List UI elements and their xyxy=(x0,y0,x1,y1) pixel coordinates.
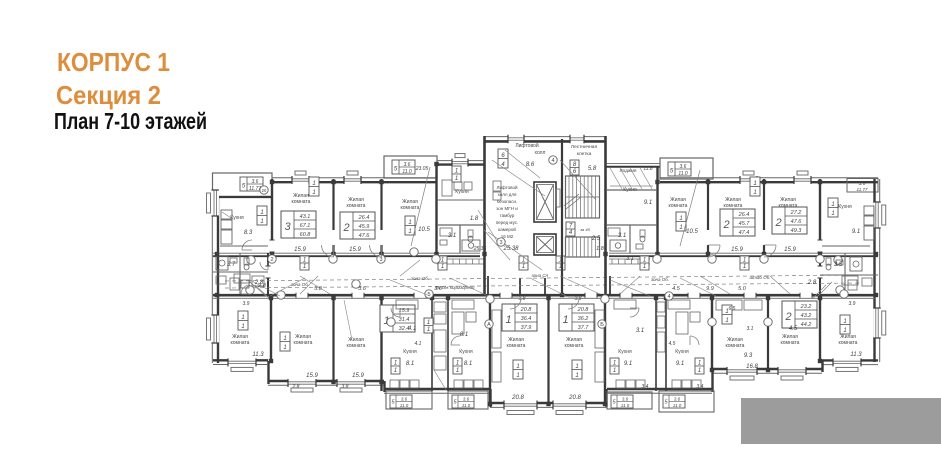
svg-text:20.8: 20.8 xyxy=(520,307,533,313)
svg-text:23.2: 23.2 xyxy=(800,304,812,310)
svg-text:4: 4 xyxy=(667,294,670,300)
svg-text:1: 1 xyxy=(743,258,746,264)
svg-text:1: 1 xyxy=(753,190,756,196)
svg-text:43.1: 43.1 xyxy=(300,214,311,220)
svg-text:1: 1 xyxy=(522,264,525,270)
svg-text:3.6: 3.6 xyxy=(434,286,443,292)
svg-text:1: 1 xyxy=(643,264,646,270)
svg-text:60.8: 60.8 xyxy=(300,232,312,238)
svg-text:1: 1 xyxy=(283,345,286,351)
svg-text:1: 1 xyxy=(516,364,519,370)
svg-text:37.9: 37.9 xyxy=(521,325,532,331)
svg-text:11.0: 11.0 xyxy=(678,171,688,177)
svg-text:27.2: 27.2 xyxy=(790,210,802,216)
svg-text:1: 1 xyxy=(312,181,315,187)
svg-text:3.6: 3.6 xyxy=(674,397,681,402)
svg-text:комната: комната xyxy=(839,340,858,346)
svg-text:9.1: 9.1 xyxy=(624,361,632,367)
svg-text:зона СА: зона СА xyxy=(531,273,549,278)
svg-text:2: 2 xyxy=(342,222,349,234)
svg-text:3.4: 3.4 xyxy=(642,384,649,390)
svg-text:3.8: 3.8 xyxy=(342,384,349,390)
svg-text:8.1: 8.1 xyxy=(406,361,414,367)
svg-text:Кухня: Кухня xyxy=(838,204,852,210)
svg-text:1: 1 xyxy=(843,328,846,334)
svg-text:15.9: 15.9 xyxy=(731,247,743,253)
svg-text:1: 1 xyxy=(698,368,701,374)
svg-text:зон МГН и: зон МГН и xyxy=(496,206,518,211)
svg-text:3.6: 3.6 xyxy=(463,397,470,402)
svg-text:3: 3 xyxy=(284,221,291,233)
svg-text:3.1: 3.1 xyxy=(747,326,754,332)
svg-text:3: 3 xyxy=(379,257,382,263)
svg-text:Секция 2: Секция 2 xyxy=(56,80,161,110)
svg-text:9.9: 9.9 xyxy=(706,286,714,292)
svg-text:3.6: 3.6 xyxy=(680,164,687,170)
svg-text:комната: комната xyxy=(401,205,420,211)
svg-text:11.0: 11.0 xyxy=(402,169,412,175)
svg-text:15.9: 15.9 xyxy=(294,247,306,253)
svg-text:11.77: 11.77 xyxy=(857,187,868,192)
svg-text:1: 1 xyxy=(753,181,756,187)
svg-text:1.8: 1.8 xyxy=(596,246,605,252)
svg-text:комната: комната xyxy=(507,343,526,349)
svg-text:1: 1 xyxy=(456,361,459,367)
svg-text:37.7: 37.7 xyxy=(578,325,590,331)
svg-text:Кухня: Кухня xyxy=(618,349,632,355)
svg-text:1.8: 1.8 xyxy=(470,216,479,222)
svg-text:тамбур: тамбур xyxy=(500,213,515,218)
svg-text:3.6: 3.6 xyxy=(358,286,367,292)
svg-text:штаб Об.: штаб Об. xyxy=(750,275,771,280)
svg-text:3.8: 3.8 xyxy=(519,296,526,302)
svg-text:4.5: 4.5 xyxy=(669,341,676,347)
svg-text:Б: Б xyxy=(600,322,604,328)
svg-text:15.9: 15.9 xyxy=(352,373,364,379)
svg-text:1: 1 xyxy=(456,368,459,374)
svg-text:11.0: 11.0 xyxy=(673,403,682,408)
svg-text:1: 1 xyxy=(505,314,511,326)
svg-text:клетка: клетка xyxy=(577,152,592,157)
svg-text:67.1: 67.1 xyxy=(300,223,311,229)
svg-text:1: 1 xyxy=(394,368,397,374)
svg-text:1: 1 xyxy=(241,324,244,330)
svg-text:1: 1 xyxy=(394,361,397,367)
svg-text:9.1: 9.1 xyxy=(676,361,684,367)
svg-text:комната: комната xyxy=(292,199,311,205)
svg-text:26.4: 26.4 xyxy=(358,215,370,221)
svg-text:комната: комната xyxy=(347,203,366,209)
svg-text:Кухня: Кухня xyxy=(403,349,417,355)
svg-text:3.9: 3.9 xyxy=(243,301,250,307)
svg-text:47.6: 47.6 xyxy=(791,219,803,225)
svg-text:20: 20 xyxy=(262,188,267,193)
svg-text:10.5: 10.5 xyxy=(686,229,698,235)
svg-text:1: 1 xyxy=(831,202,834,208)
svg-text:зона Об.: зона Об. xyxy=(650,277,669,282)
svg-text:5: 5 xyxy=(427,292,430,298)
svg-text:11.0: 11.0 xyxy=(462,403,471,408)
svg-text:1: 1 xyxy=(522,258,525,264)
svg-text:15.9: 15.9 xyxy=(349,247,361,253)
svg-text:1: 1 xyxy=(241,315,244,321)
svg-text:25.38: 25.38 xyxy=(502,246,519,252)
svg-text:8.1: 8.1 xyxy=(460,332,468,338)
svg-text:49.3: 49.3 xyxy=(791,228,803,234)
svg-text:3.6: 3.6 xyxy=(622,397,629,402)
svg-text:1: 1 xyxy=(427,327,430,333)
svg-text:11.3: 11.3 xyxy=(850,352,862,358)
svg-text:3.4: 3.4 xyxy=(697,384,704,390)
svg-text:6.5: 6.5 xyxy=(729,306,736,312)
svg-text:1: 1 xyxy=(743,264,746,270)
svg-text:1: 1 xyxy=(725,318,728,324)
svg-text:11.0: 11.0 xyxy=(400,403,409,408)
svg-text:3.1: 3.1 xyxy=(618,233,626,239)
svg-text:комната: комната xyxy=(231,340,250,346)
svg-text:3.9: 3.9 xyxy=(849,301,856,307)
svg-text:План 7-10 этажей: План 7-10 этажей xyxy=(54,108,207,134)
svg-text:4.5: 4.5 xyxy=(789,326,798,332)
svg-text:1: 1 xyxy=(441,258,444,264)
svg-text:43.2: 43.2 xyxy=(801,313,812,319)
svg-text:36.4: 36.4 xyxy=(521,316,532,322)
svg-text:10.5: 10.5 xyxy=(418,227,430,233)
svg-text:комната: комната xyxy=(294,340,313,346)
svg-text:5.0: 5.0 xyxy=(738,286,747,292)
svg-text:1: 1 xyxy=(843,319,846,325)
svg-text:31.4: 31.4 xyxy=(399,317,410,323)
svg-text:1: 1 xyxy=(283,336,286,342)
svg-text:1: 1 xyxy=(516,373,519,379)
svg-text:1: 1 xyxy=(679,216,682,222)
svg-text:11.3: 11.3 xyxy=(252,352,264,358)
svg-text:1: 1 xyxy=(312,190,315,196)
svg-text:9.1: 9.1 xyxy=(852,229,860,235)
svg-text:26.4: 26.4 xyxy=(738,212,750,218)
svg-text:2: 2 xyxy=(722,219,729,231)
svg-text:1: 1 xyxy=(260,219,263,225)
svg-text:20.8: 20.8 xyxy=(577,307,590,313)
svg-text:1: 1 xyxy=(427,320,430,326)
svg-text:20.8: 20.8 xyxy=(511,395,524,401)
svg-text:1: 1 xyxy=(831,211,834,217)
svg-text:4.1: 4.1 xyxy=(408,326,416,332)
svg-text:1: 1 xyxy=(303,258,306,264)
svg-text:А: А xyxy=(487,322,491,328)
svg-text:8.3: 8.3 xyxy=(244,230,253,236)
svg-text:комната: комната xyxy=(669,203,688,209)
svg-text:1: 1 xyxy=(575,373,578,379)
svg-text:36.2: 36.2 xyxy=(578,316,589,322)
svg-text:3.6: 3.6 xyxy=(404,162,411,168)
svg-text:3.5: 3.5 xyxy=(834,262,843,268)
svg-text:1: 1 xyxy=(455,176,458,182)
svg-text:1: 1 xyxy=(613,368,616,374)
svg-text:Лестничная: Лестничная xyxy=(571,144,598,150)
svg-text:25.35: 25.35 xyxy=(473,246,487,252)
svg-text:3.1: 3.1 xyxy=(448,233,456,239)
svg-text:1: 1 xyxy=(562,314,568,326)
svg-text:Лоджия: Лоджия xyxy=(620,168,637,174)
svg-text:2: 2 xyxy=(270,257,273,263)
svg-text:комната: комната xyxy=(781,340,800,346)
svg-text:2.8: 2.8 xyxy=(257,283,267,289)
svg-text:4.5: 4.5 xyxy=(672,286,681,292)
svg-text:11.8: 11.8 xyxy=(643,166,653,172)
svg-text:комната: комната xyxy=(565,343,584,349)
svg-text:44.2: 44.2 xyxy=(801,322,812,328)
svg-text:9.1: 9.1 xyxy=(644,200,652,206)
svg-text:1: 1 xyxy=(441,264,444,270)
svg-text:45.9: 45.9 xyxy=(359,224,370,230)
svg-text:холл для: холл для xyxy=(498,192,517,197)
svg-text:1: 1 xyxy=(408,220,411,226)
svg-text:Кухня: Кухня xyxy=(623,187,637,193)
svg-text:комната: комната xyxy=(347,343,366,349)
svg-text:Лифтовой: Лифтовой xyxy=(515,142,538,149)
svg-text:1: 1 xyxy=(613,361,616,367)
svg-text:2: 2 xyxy=(774,217,781,229)
svg-text:45.7: 45.7 xyxy=(739,221,751,227)
svg-text:1: 1 xyxy=(679,225,682,231)
svg-text:1: 1 xyxy=(698,361,701,367)
svg-text:3.1: 3.1 xyxy=(626,256,634,262)
svg-text:1: 1 xyxy=(575,364,578,370)
svg-text:1: 1 xyxy=(408,229,411,235)
svg-text:8.6: 8.6 xyxy=(526,162,535,168)
svg-text:за 4б: за 4б xyxy=(579,227,590,232)
svg-text:2.5: 2.5 xyxy=(591,236,601,242)
svg-text:КОРПУС 1: КОРПУС 1 xyxy=(57,47,170,77)
svg-text:5.8: 5.8 xyxy=(314,286,323,292)
svg-text:11.77: 11.77 xyxy=(249,186,261,192)
svg-text:комната: комната xyxy=(726,343,745,349)
svg-text:15.9: 15.9 xyxy=(306,373,318,379)
svg-text:зона Об.: зона Об. xyxy=(410,276,429,281)
svg-text:холл: холл xyxy=(535,150,546,156)
svg-text:5.8: 5.8 xyxy=(588,166,597,172)
svg-text:47.6: 47.6 xyxy=(359,233,371,239)
svg-text:4.1: 4.1 xyxy=(415,341,422,347)
svg-text:Кухня: Кухня xyxy=(675,349,689,355)
svg-text:3.7: 3.7 xyxy=(227,262,236,268)
svg-text:4: 4 xyxy=(551,158,554,164)
svg-text:1: 1 xyxy=(260,210,263,216)
svg-text:1: 1 xyxy=(455,169,458,175)
svg-text:1: 1 xyxy=(303,264,306,270)
svg-text:1: 1 xyxy=(643,258,646,264)
svg-text:2.8: 2.8 xyxy=(807,280,817,286)
svg-text:перед мус.: перед мус. xyxy=(496,220,519,225)
svg-text:23.05: 23.05 xyxy=(415,166,429,172)
svg-text:2.8: 2.8 xyxy=(292,384,300,390)
svg-text:3.1: 3.1 xyxy=(636,328,644,334)
svg-text:20.8: 20.8 xyxy=(568,395,581,401)
svg-text:16.8: 16.8 xyxy=(746,364,758,370)
svg-text:Кухня: Кухня xyxy=(459,349,473,355)
svg-text:47.4: 47.4 xyxy=(739,230,750,236)
svg-text:Лифтовой: Лифтовой xyxy=(497,184,518,190)
svg-text:3: 3 xyxy=(499,240,502,246)
svg-text:11.0: 11.0 xyxy=(621,403,630,408)
svg-text:камерой: камерой xyxy=(498,226,516,232)
svg-text:комната: комната xyxy=(724,203,743,209)
svg-text:2: 2 xyxy=(784,311,791,323)
svg-text:3.8: 3.8 xyxy=(575,296,582,302)
svg-text:9.3: 9.3 xyxy=(744,353,753,359)
svg-text:15.9: 15.9 xyxy=(784,247,796,253)
svg-text:3.6: 3.6 xyxy=(252,179,259,185)
svg-text:3.6: 3.6 xyxy=(401,397,408,402)
svg-text:8.1: 8.1 xyxy=(464,361,472,367)
